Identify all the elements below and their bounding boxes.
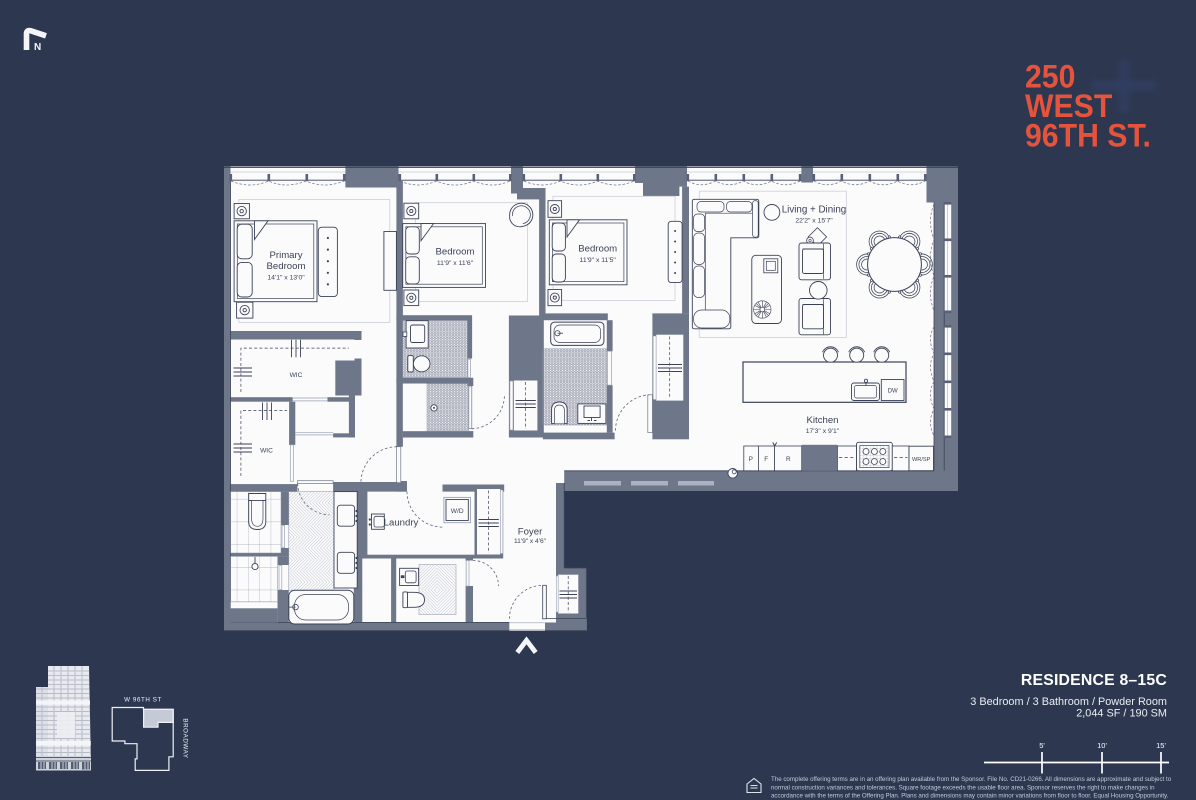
- svg-text:WIC: WIC: [290, 372, 303, 379]
- svg-text:WR/SP: WR/SP: [912, 457, 931, 463]
- svg-text:P: P: [749, 456, 753, 463]
- svg-text:R: R: [786, 456, 791, 463]
- svg-text:11'9" x 4'6": 11'9" x 4'6": [514, 538, 547, 545]
- svg-text:Bedroom: Bedroom: [267, 261, 306, 272]
- svg-text:normal construction variances: normal construction variances and tolera…: [771, 784, 1155, 791]
- svg-text:Laundry: Laundry: [384, 518, 419, 529]
- svg-text:Primary: Primary: [269, 250, 302, 261]
- svg-text:5': 5': [1039, 741, 1045, 750]
- svg-text:Living + Dining: Living + Dining: [782, 205, 847, 216]
- svg-text:F: F: [764, 456, 768, 463]
- svg-text:The complete offering terms ar: The complete offering terms are in an of…: [771, 776, 1172, 783]
- svg-text:RESIDENCE 8–15C: RESIDENCE 8–15C: [1021, 672, 1167, 689]
- svg-text:3 Bedroom / 3 Bathroom / Powde: 3 Bedroom / 3 Bathroom / Powder Room: [970, 696, 1167, 708]
- svg-text:W/D: W/D: [451, 508, 464, 515]
- svg-text:2,044 SF / 190 SM: 2,044 SF / 190 SM: [1076, 708, 1167, 720]
- svg-text:10': 10': [1097, 741, 1107, 750]
- svg-text:11'9" x 11'5": 11'9" x 11'5": [580, 257, 617, 264]
- svg-text:Bedroom: Bedroom: [436, 247, 475, 258]
- svg-text:15': 15': [1156, 741, 1166, 750]
- svg-text:W 96TH ST: W 96TH ST: [124, 697, 162, 704]
- svg-text:WIC: WIC: [260, 448, 273, 455]
- svg-text:Foyer: Foyer: [518, 527, 543, 538]
- svg-text:N: N: [34, 42, 41, 53]
- svg-text:Kitchen: Kitchen: [807, 415, 839, 426]
- svg-text:22'2" x 15'7": 22'2" x 15'7": [795, 218, 833, 225]
- svg-text:17'3" x 9'1": 17'3" x 9'1": [806, 428, 840, 435]
- svg-text:14'1" x 13'0": 14'1" x 13'0": [267, 275, 305, 282]
- svg-text:DW: DW: [888, 389, 898, 395]
- svg-text:Bedroom: Bedroom: [578, 244, 617, 255]
- svg-text:accordance with the terms of t: accordance with the terms of the Offerin…: [771, 793, 1169, 800]
- svg-text:11'9" x 11'6": 11'9" x 11'6": [437, 260, 474, 267]
- svg-text:BROADWAY: BROADWAY: [182, 718, 189, 758]
- svg-text:96TH ST.: 96TH ST.: [1025, 118, 1151, 154]
